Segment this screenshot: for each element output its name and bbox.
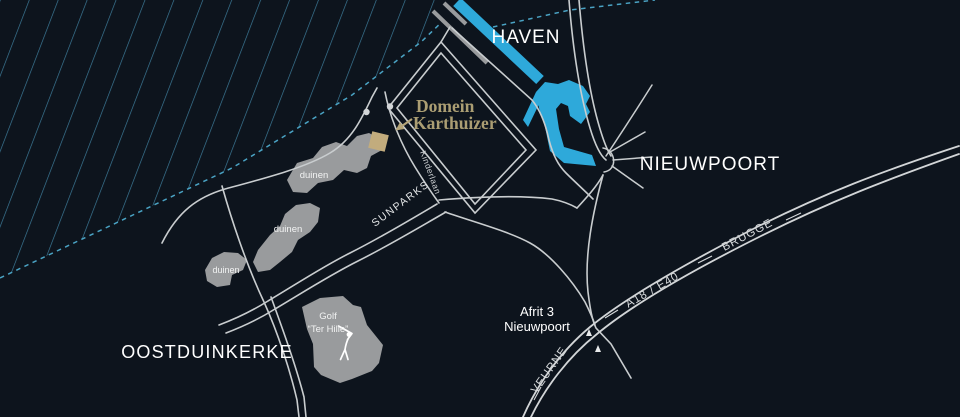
label-duinen-2: duinen <box>274 224 303 235</box>
label-sunparks: SUNPARKS <box>370 178 432 229</box>
junction-spoke-ne <box>606 85 652 156</box>
highway-edge-upper <box>523 146 959 417</box>
label-afrit-line1: Afrit 3 <box>520 304 554 319</box>
dunes-area-1 <box>287 133 382 193</box>
label-oostduinkerke: OOSTDUINKERKE <box>121 342 293 362</box>
map-canvas: HAVEN NIEUWPOORT OOSTDUINKERKE Domein Ka… <box>0 0 960 417</box>
north-road-left-edge <box>569 0 606 160</box>
label-duinen-3: duinen <box>212 265 239 275</box>
roundabout-dot-2 <box>387 103 393 109</box>
label-brugge: BRUGGE <box>720 217 775 254</box>
highway-center-dashes <box>534 213 801 400</box>
junction-spoke-se <box>612 166 643 188</box>
golf-area <box>302 296 383 383</box>
label-afrit-line2: Nieuwpoort <box>504 319 570 334</box>
label-veurne: VEURNE <box>529 345 570 396</box>
label-golf-line2: “Ter Hille” <box>308 324 349 335</box>
label-duinen-1: duinen <box>300 170 329 181</box>
north-road-right-edge <box>579 0 611 156</box>
ramp-arrow-2 <box>595 345 601 352</box>
label-highway-number: A18 / E40 <box>624 270 682 310</box>
domein-marker <box>368 119 412 152</box>
highway <box>523 146 959 417</box>
coastline-dashed-east <box>493 0 655 27</box>
east-west-road <box>439 197 577 208</box>
center-dash-3 <box>786 213 801 220</box>
label-domein-line2: Karthuizer <box>413 113 497 133</box>
label-nieuwpoort: NIEUWPOORT <box>640 154 781 175</box>
label-golf-line1: Golf <box>319 311 337 322</box>
highway-edge-lower <box>531 154 959 417</box>
label-haven: HAVEN <box>491 27 560 48</box>
pier-access-road <box>441 27 450 42</box>
dunes-area-2 <box>253 203 320 272</box>
roundabout-dot-1 <box>363 109 369 115</box>
location-map: HAVEN NIEUWPOORT OOSTDUINKERKE Domein Ka… <box>0 0 960 417</box>
exit-ramp-road <box>587 175 631 378</box>
